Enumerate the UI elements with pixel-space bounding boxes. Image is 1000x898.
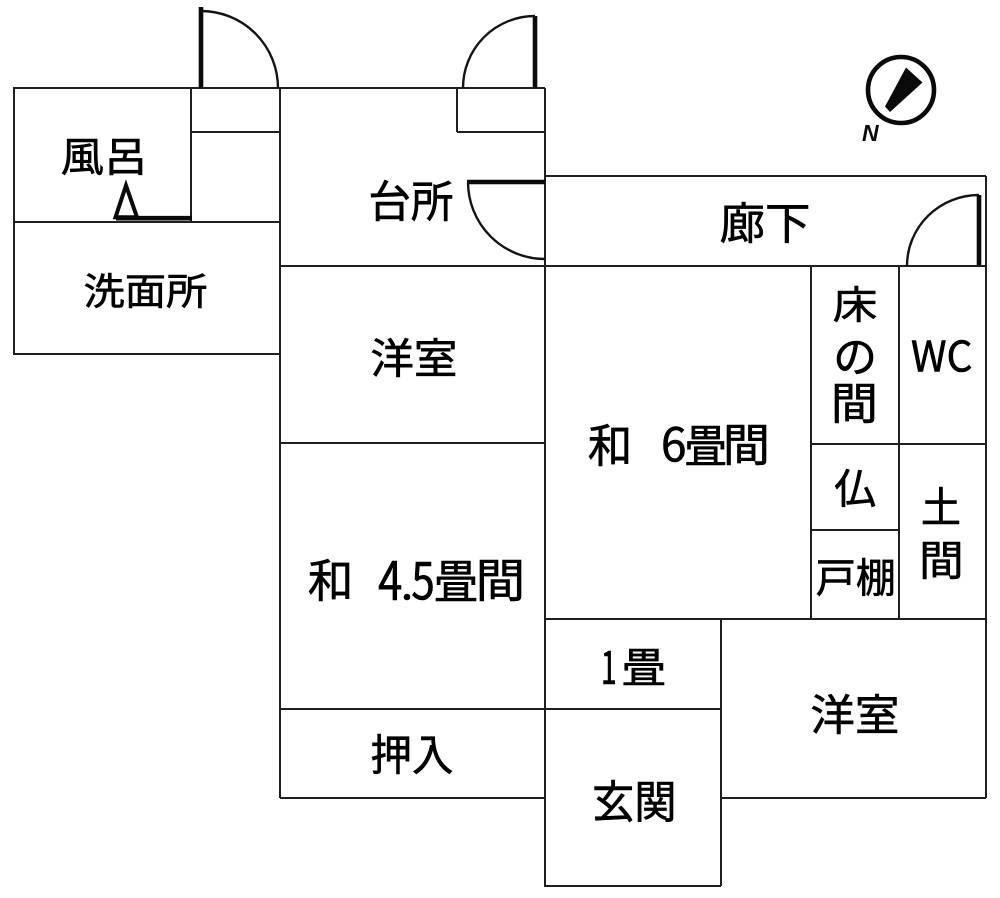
svg-text:N: N <box>862 120 879 146</box>
